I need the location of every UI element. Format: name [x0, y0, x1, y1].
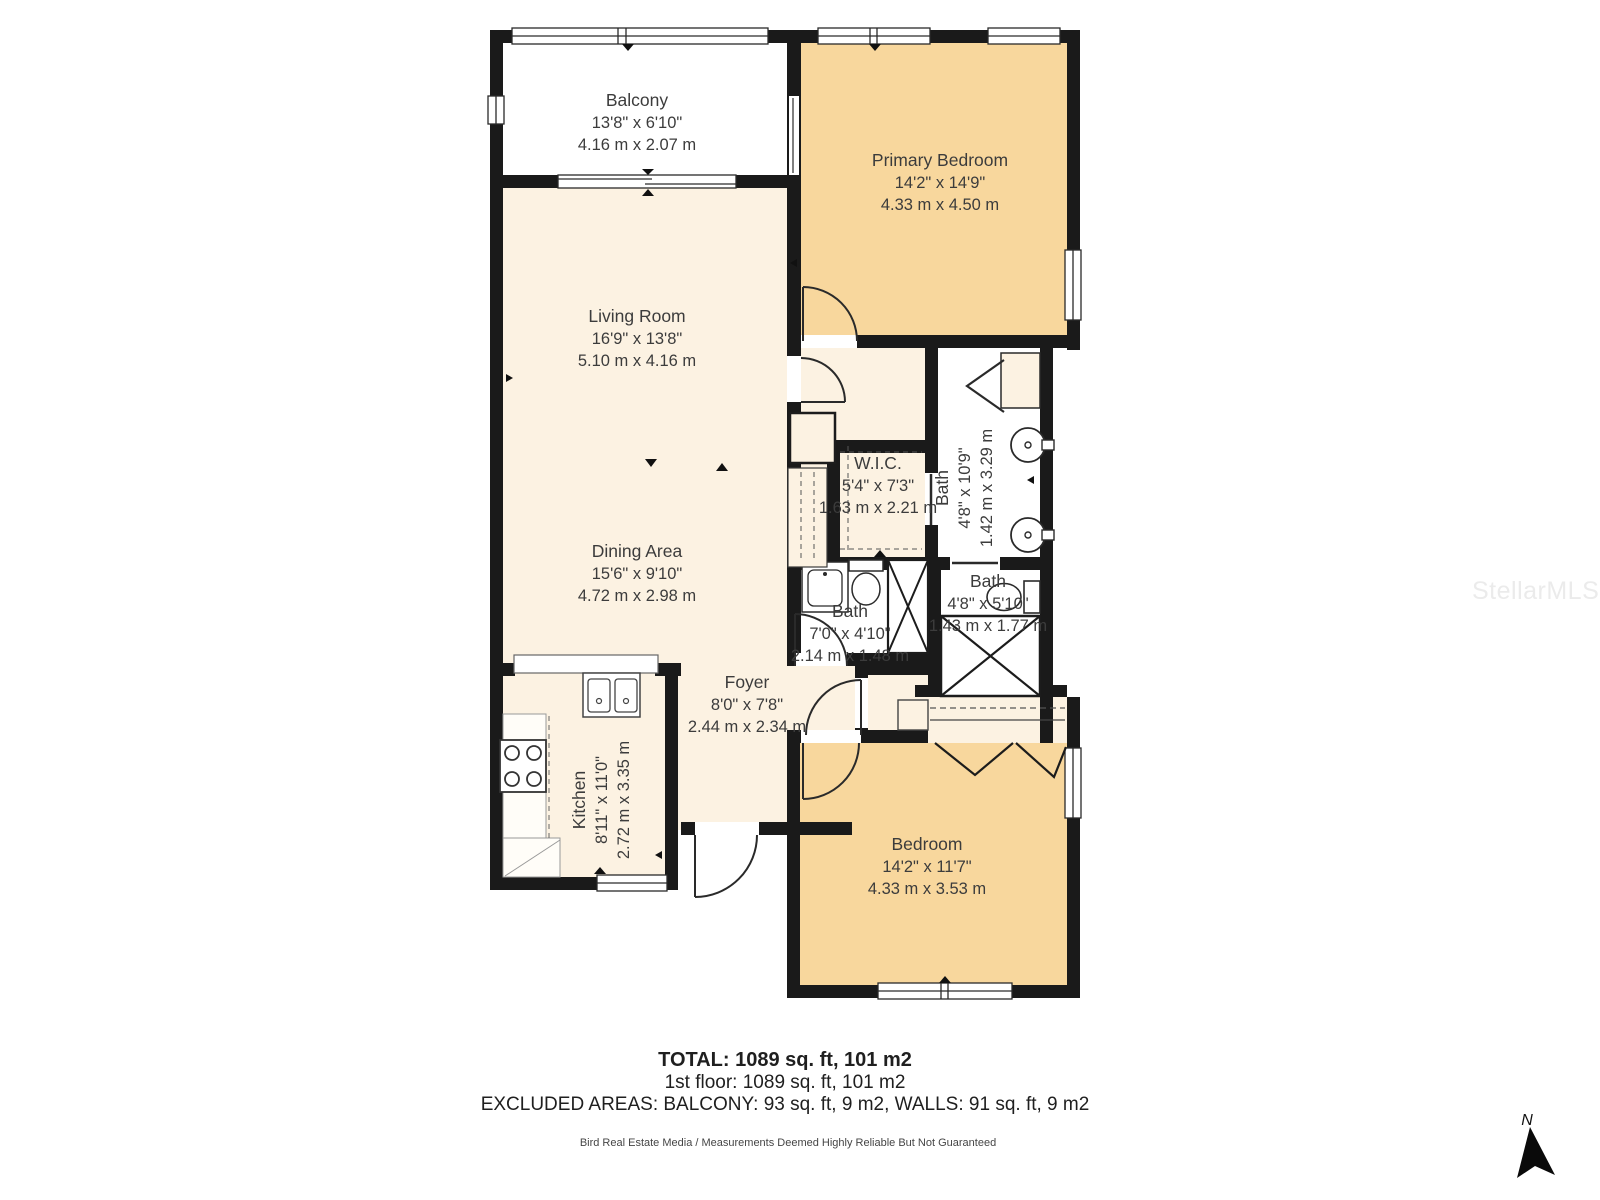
room-label-kitchen: Kitchen 8'11" x 11'0" 2.72 m x 3.35 m: [567, 741, 635, 859]
bedroom-right-window: [1065, 748, 1081, 818]
kitchen-corner-counter: [503, 838, 560, 877]
disclaimer-line: Bird Real Estate Media / Measurements De…: [580, 1137, 996, 1149]
room-label-primary-bedroom: Primary Bedroom 14'2" x 14'9" 4.33 m x 4…: [872, 148, 1008, 216]
room-label-balcony: Balcony 13'8" x 6'10" 4.16 m x 2.07 m: [578, 88, 696, 156]
area-summary: TOTAL: 1089 sq. ft, 101 m2 1st floor: 10…: [481, 1049, 1090, 1116]
north-arrow-icon: [1517, 1127, 1555, 1178]
balcony-left-window: [488, 96, 504, 124]
primary-right-window: [1065, 250, 1081, 320]
kitchen-bottom-window: [597, 875, 667, 891]
room-label-foyer: Foyer 8'0" x 7'8" 2.44 m x 2.34 m: [688, 670, 806, 738]
balcony-top-window: [512, 28, 768, 44]
floor-area-line: 1st floor: 1089 sq. ft, 101 m2: [481, 1072, 1090, 1094]
kitchen-sink-icon: [583, 673, 640, 717]
stove-icon: [500, 740, 546, 792]
floor-plan-page: N Balcony 13'8" x 6'10" 4.16 m x 2.07 m …: [0, 0, 1600, 1200]
room-label-small-bath: Bath 7'0" x 4'10" 2.14 m x 1.48 m: [791, 599, 909, 667]
primary-top-window-b: [988, 28, 1060, 44]
room-label-wic: W.I.C. 5'4" x 7'3" 1.63 m x 2.21 m: [819, 451, 937, 519]
room-label-bedroom: Bedroom 14'2" x 11'7" 4.33 m x 3.53 m: [868, 832, 986, 900]
room-label-dining-area: Dining Area 15'6" x 9'10" 4.72 m x 2.98 …: [578, 539, 696, 607]
entry-door-icon: [695, 835, 757, 897]
primary-top-window-a: [818, 28, 930, 44]
excluded-area-line: EXCLUDED AREAS: BALCONY: 93 sq. ft, 9 m2…: [481, 1094, 1090, 1116]
bedroom-bottom-window: [878, 983, 1012, 999]
kitchen-peninsula-counter: [514, 655, 658, 673]
total-area-line: TOTAL: 1089 sq. ft, 101 m2: [481, 1049, 1090, 1072]
room-label-hall-bath: Bath 4'8" x 5'10" 1.43 m x 1.77 m: [929, 569, 1047, 637]
bath-alcove: [1001, 353, 1040, 408]
north-arrow: N: [1517, 1112, 1555, 1178]
balcony-sliding-door: [558, 175, 736, 188]
room-label-living-room: Living Room 16'9" x 13'8" 5.10 m x 4.16 …: [578, 304, 696, 372]
room-label-primary-bath: Bath 4'8" x 10'9" 1.42 m x 3.29 m: [930, 429, 998, 547]
stellar-mls-watermark: StellarMLS: [1472, 577, 1599, 606]
north-label: N: [1521, 1112, 1533, 1129]
